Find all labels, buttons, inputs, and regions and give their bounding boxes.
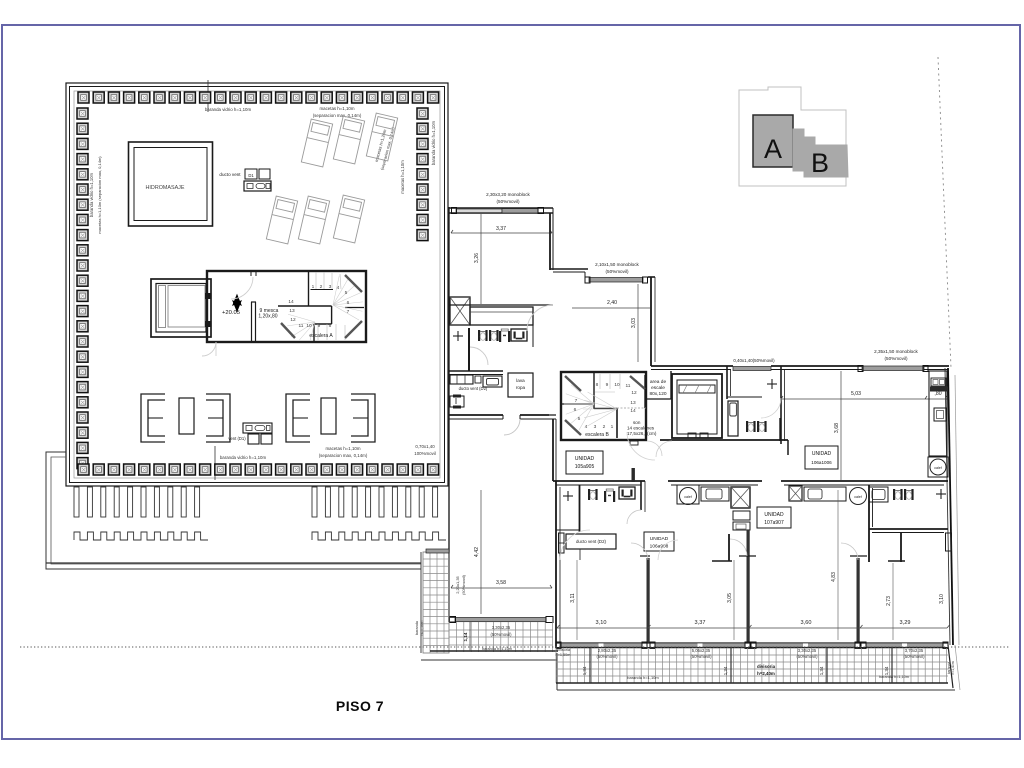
svg-text:1,34: 1,34 bbox=[723, 666, 728, 675]
svg-text:4,83: 4,83 bbox=[831, 572, 837, 582]
svg-text:UNIDAD: UNIDAD bbox=[764, 512, 784, 518]
svg-text:7: 7 bbox=[575, 398, 578, 404]
svg-text:area de: area de bbox=[650, 379, 667, 385]
svg-text:(50%movil): (50%movil) bbox=[691, 654, 713, 659]
svg-text:3,30x2,35: 3,30x2,35 bbox=[798, 648, 817, 653]
svg-text:h=2,40m: h=2,40m bbox=[757, 671, 775, 676]
svg-text:baranda h=1,10m: baranda h=1,10m bbox=[482, 647, 512, 651]
svg-text:ducto vent: ducto vent bbox=[219, 172, 241, 177]
svg-text:escalera B: escalera B bbox=[585, 432, 609, 438]
svg-text:80x,120: 80x,120 bbox=[649, 391, 666, 397]
svg-text:1: 1 bbox=[312, 284, 315, 290]
svg-text:8: 8 bbox=[329, 323, 332, 329]
svg-text:calef: calef bbox=[934, 466, 942, 470]
svg-text:(separacion max, 0,14m): (separacion max, 0,14m) bbox=[319, 453, 368, 458]
svg-text:3,37: 3,37 bbox=[695, 620, 706, 626]
svg-text:3,60: 3,60 bbox=[801, 620, 812, 626]
svg-text:baranda vidrio h=1,10m: baranda vidrio h=1,10m bbox=[431, 120, 436, 165]
svg-text:17,5x26,3(cm): 17,5x26,3(cm) bbox=[627, 431, 657, 436]
svg-text:7: 7 bbox=[347, 309, 350, 315]
svg-text:3,68: 3,68 bbox=[834, 423, 840, 433]
svg-text:9: 9 bbox=[318, 323, 321, 329]
svg-text:3,26: 3,26 bbox=[474, 253, 480, 263]
svg-text:2,20x1,35: 2,20x1,35 bbox=[455, 575, 460, 593]
svg-text:h=1,10m: h=1,10m bbox=[420, 621, 424, 636]
svg-text:14: 14 bbox=[630, 408, 636, 414]
svg-text:h=1,50m: h=1,50m bbox=[556, 653, 571, 657]
svg-text:5,03: 5,03 bbox=[851, 391, 861, 397]
svg-text:3,70x2,35: 3,70x2,35 bbox=[905, 648, 924, 653]
svg-text:100%movil: 100%movil bbox=[414, 451, 435, 456]
svg-text:10: 10 bbox=[306, 323, 312, 329]
svg-text:macetas h=1,10m (separacion ma: macetas h=1,10m (separacion max, 0,14m) bbox=[97, 156, 102, 234]
svg-text:107a907: 107a907 bbox=[764, 520, 784, 526]
svg-text:(50%movil): (50%movil) bbox=[797, 654, 819, 659]
svg-text:macetas h=1,10m: macetas h=1,10m bbox=[400, 160, 405, 194]
svg-text:(50%movil): (50%movil) bbox=[497, 199, 520, 204]
svg-text:(50%movil): (50%movil) bbox=[904, 654, 926, 659]
svg-text:6: 6 bbox=[347, 300, 350, 306]
svg-text:3,11: 3,11 bbox=[570, 593, 576, 603]
svg-text:2,10x1,50 monoblock: 2,10x1,50 monoblock bbox=[595, 262, 639, 267]
svg-text:2: 2 bbox=[320, 284, 323, 290]
svg-text:(50%movil): (50%movil) bbox=[491, 632, 513, 637]
svg-text:1,34: 1,34 bbox=[819, 666, 824, 675]
svg-text:macetas h=1,10m: macetas h=1,10m bbox=[319, 106, 354, 111]
svg-text:8: 8 bbox=[596, 382, 599, 388]
svg-text:1,34: 1,34 bbox=[582, 666, 587, 675]
svg-text:5: 5 bbox=[345, 290, 348, 296]
svg-text:baranda vidrio h=1,10m: baranda vidrio h=1,10m bbox=[220, 455, 267, 460]
svg-text:3,37: 3,37 bbox=[496, 226, 506, 232]
svg-text:calef: calef bbox=[684, 495, 692, 499]
svg-text:1: 1 bbox=[611, 424, 614, 430]
svg-text:13: 13 bbox=[630, 400, 636, 406]
svg-text:2,40: 2,40 bbox=[607, 300, 617, 306]
svg-text:5,05x2,35: 5,05x2,35 bbox=[692, 648, 711, 653]
svg-text:macetas h=1,10m: macetas h=1,10m bbox=[325, 446, 360, 451]
svg-text:14: 14 bbox=[288, 299, 294, 305]
svg-text:UNIDAD: UNIDAD bbox=[650, 536, 669, 542]
svg-text:1,14: 1,14 bbox=[463, 632, 468, 641]
svg-text:baranda: baranda bbox=[415, 620, 419, 635]
svg-text:3: 3 bbox=[594, 424, 597, 430]
svg-text:PISO 7: PISO 7 bbox=[336, 698, 384, 714]
svg-text:,80: ,80 bbox=[934, 391, 941, 397]
svg-text:escalera A: escalera A bbox=[309, 333, 333, 339]
svg-text:(50%movil): (50%movil) bbox=[606, 269, 629, 274]
svg-text:4,42: 4,42 bbox=[474, 547, 480, 557]
svg-text:A: A bbox=[764, 134, 782, 164]
svg-text:3,29: 3,29 bbox=[900, 620, 911, 626]
svg-text:baranda h=1,10m: baranda h=1,10m bbox=[627, 675, 659, 680]
svg-text:3: 3 bbox=[329, 284, 332, 290]
svg-text:baranda vidrio h=1,10m: baranda vidrio h=1,10m bbox=[89, 172, 94, 217]
svg-text:3,58: 3,58 bbox=[496, 580, 506, 586]
svg-text:vent (D1): vent (D1) bbox=[228, 436, 246, 441]
svg-text:5: 5 bbox=[578, 416, 581, 422]
svg-text:ropa: ropa bbox=[516, 385, 526, 390]
svg-text:1,34: 1,34 bbox=[884, 666, 889, 675]
svg-text:3,10: 3,10 bbox=[939, 594, 945, 604]
svg-text:(50%movil): (50%movil) bbox=[461, 574, 466, 595]
svg-text:4: 4 bbox=[337, 285, 340, 291]
svg-text:3,03: 3,03 bbox=[631, 318, 637, 328]
svg-text:h=1,40m: h=1,40m bbox=[951, 661, 955, 674]
svg-text:calef: calef bbox=[854, 495, 862, 499]
svg-text:(separacion max, 0,14m): (separacion max, 0,14m) bbox=[313, 113, 362, 118]
svg-text:12: 12 bbox=[290, 317, 296, 323]
svg-text:3,05: 3,05 bbox=[727, 593, 733, 603]
svg-text:14 escalones: 14 escalones bbox=[627, 426, 655, 431]
svg-text:2: 2 bbox=[603, 424, 606, 430]
svg-text:2,73: 2,73 bbox=[886, 596, 892, 606]
svg-text:(50%movil): (50%movil) bbox=[597, 654, 619, 659]
svg-text:3,30x2,35: 3,30x2,35 bbox=[492, 625, 511, 630]
svg-text:11: 11 bbox=[299, 323, 304, 329]
svg-text:HIDROMASAJE: HIDROMASAJE bbox=[146, 185, 185, 191]
svg-text:105a905: 105a905 bbox=[575, 464, 595, 470]
svg-text:106a1006: 106a1006 bbox=[811, 460, 832, 465]
svg-text:lava: lava bbox=[516, 378, 525, 383]
svg-text:2,35x1,50 monoblock: 2,35x1,50 monoblock bbox=[874, 349, 918, 354]
svg-text:6: 6 bbox=[574, 407, 577, 413]
svg-text:1,20x,80: 1,20x,80 bbox=[258, 314, 277, 320]
svg-text:baranda vidrio h=1,10m: baranda vidrio h=1,10m bbox=[205, 107, 252, 112]
svg-text:baranda h=1,10m: baranda h=1,10m bbox=[879, 675, 909, 679]
svg-text:ducto vent (D2): ducto vent (D2) bbox=[576, 539, 607, 544]
svg-text:11: 11 bbox=[626, 383, 631, 389]
svg-text:D1: D1 bbox=[248, 173, 254, 178]
svg-text:divisoria: divisoria bbox=[757, 664, 776, 669]
svg-text:son: son bbox=[633, 420, 641, 425]
svg-text:13: 13 bbox=[289, 308, 295, 314]
svg-text:0,40x1,40(50%movil): 0,40x1,40(50%movil) bbox=[733, 358, 775, 363]
svg-text:0,70x1,40: 0,70x1,40 bbox=[415, 444, 435, 449]
svg-text:B: B bbox=[811, 148, 829, 178]
svg-text:(50%movil): (50%movil) bbox=[885, 356, 908, 361]
svg-text:9: 9 bbox=[606, 382, 609, 388]
svg-text:10: 10 bbox=[614, 382, 620, 388]
svg-text:ducto vent (D2): ducto vent (D2) bbox=[459, 386, 488, 391]
svg-text:2,80x2,35: 2,80x2,35 bbox=[598, 648, 617, 653]
svg-text:12: 12 bbox=[631, 390, 637, 396]
svg-text:UNIDAD: UNIDAD bbox=[575, 456, 595, 462]
svg-text:2,30x3,20 monoblock: 2,30x3,20 monoblock bbox=[486, 192, 530, 197]
svg-text:divisoria: divisoria bbox=[556, 648, 571, 652]
svg-text:escale: escale bbox=[651, 385, 665, 391]
svg-text:3,10: 3,10 bbox=[596, 620, 607, 626]
svg-text:4: 4 bbox=[585, 424, 588, 430]
svg-text:UNIDAD: UNIDAD bbox=[812, 451, 832, 457]
